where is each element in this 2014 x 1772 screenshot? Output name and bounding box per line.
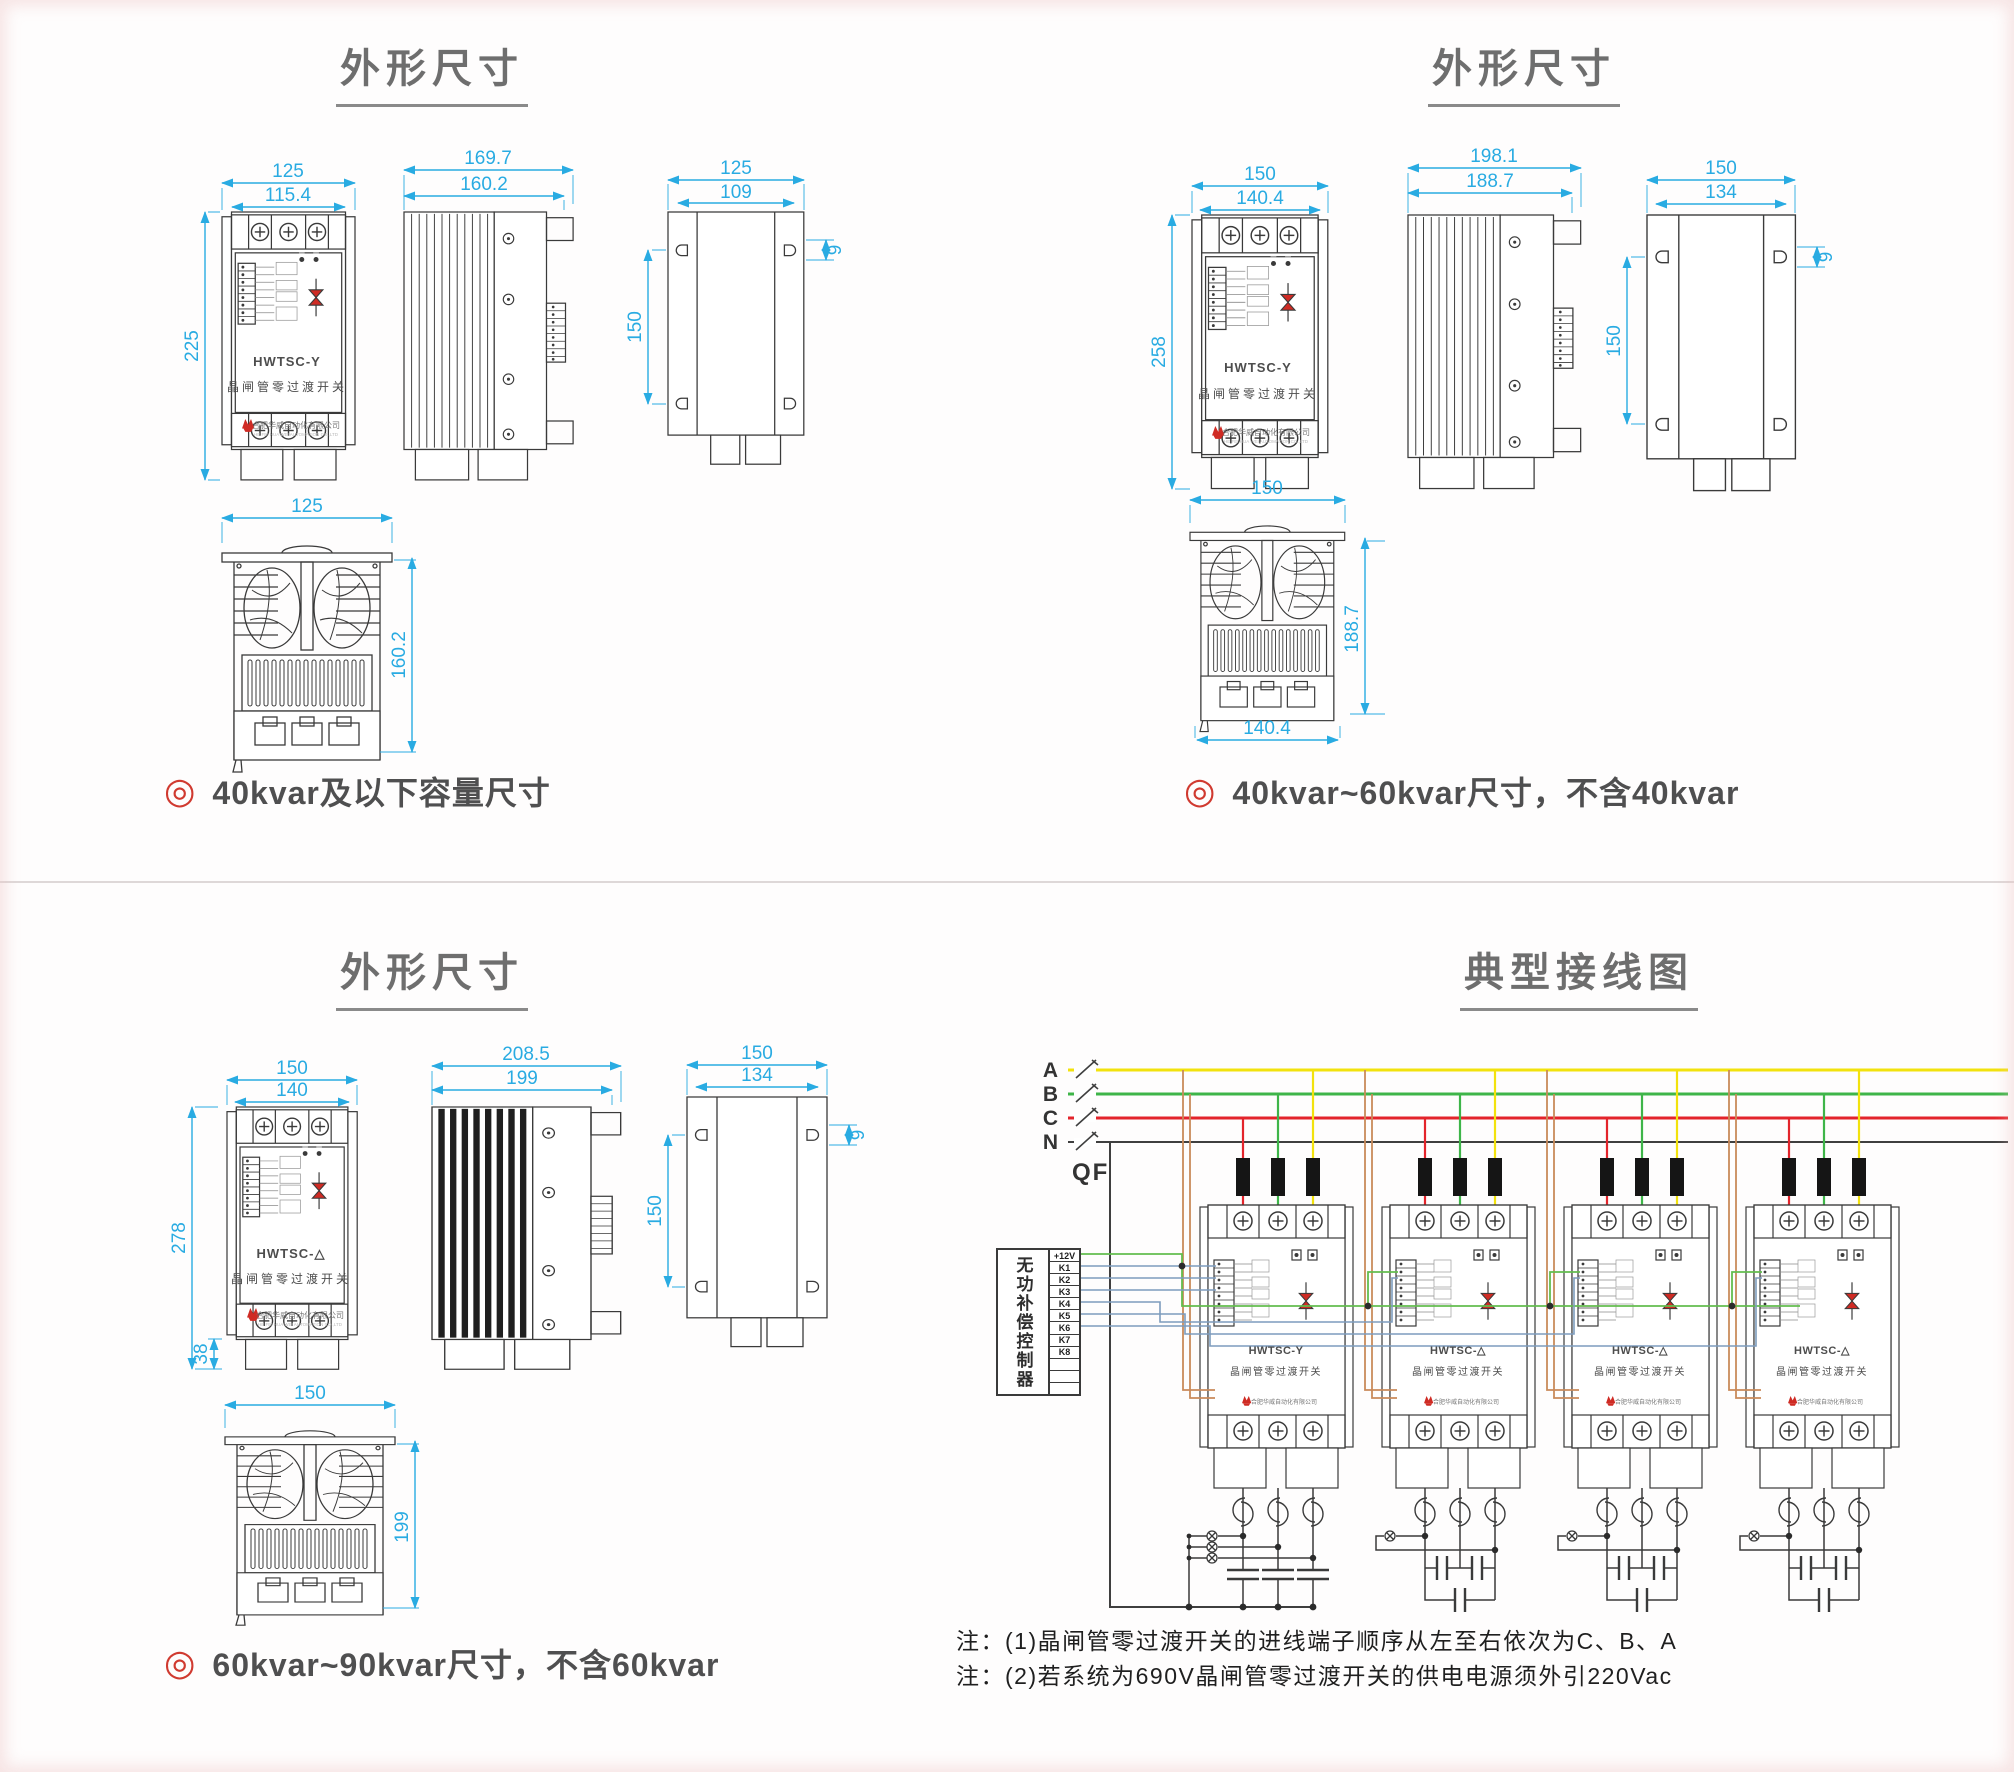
breaker-pole-icon bbox=[1074, 1108, 1098, 1126]
dim-front-inner-width: 115.4 bbox=[265, 185, 312, 206]
title-bottom-left: 外形尺寸 bbox=[336, 940, 528, 1011]
device-model: HWTSC-Y bbox=[1224, 360, 1292, 375]
wiring-diagram: A B C N QF bbox=[1043, 1059, 2008, 1612]
capacitor-bank-delta bbox=[1740, 1488, 1869, 1612]
controller-terminal-12v: +12V bbox=[1050, 1250, 1079, 1262]
dim-back-inner-width: 109 bbox=[720, 182, 752, 203]
dim-front-outer-width: 125 bbox=[272, 161, 304, 182]
caption-40kvar: ◎ 40kvar及以下容量尺寸 bbox=[164, 768, 551, 814]
caption-text: 40kvar~60kvar尺寸，不含40kvar bbox=[1232, 768, 1739, 814]
dim-back-hole-offset: 9 bbox=[825, 245, 846, 256]
quadrant-top-right: HWTSC-Y 晶闸管零过渡开关 合肥华威自动化有限公司 HE FEI HUA … bbox=[1149, 146, 1837, 740]
breaker-label: QF bbox=[1072, 1159, 1109, 1186]
dim-top-height: 199 bbox=[392, 1511, 413, 1543]
device-subtitle: 晶闸管零过渡开关 bbox=[1412, 1365, 1504, 1378]
front-view-drawing bbox=[1192, 215, 1328, 489]
device-model: HWTSC-△ bbox=[257, 1246, 326, 1261]
dim-top-bottom-width: 140.4 bbox=[1243, 718, 1291, 739]
front-view-drawing bbox=[227, 1107, 357, 1369]
caption-40-60kvar: ◎ 40kvar~60kvar尺寸，不含40kvar bbox=[1184, 768, 1739, 814]
title-wiring-diagram: 典型接线图 bbox=[1460, 940, 1698, 1011]
device-subtitle: 晶闸管零过渡开关 bbox=[1594, 1365, 1686, 1378]
dim-back-inner-width: 134 bbox=[741, 1065, 773, 1086]
dim-back-outer-width: 150 bbox=[1705, 158, 1737, 179]
caption-bullet-icon: ◎ bbox=[164, 1645, 196, 1681]
controller-terminal-k6: K6 bbox=[1050, 1322, 1079, 1334]
controller-terminal-blank bbox=[1050, 1359, 1079, 1371]
device-model: HWTSC-△ bbox=[1612, 1345, 1668, 1357]
section-divider bbox=[0, 881, 2014, 883]
top-fan-view-drawing bbox=[225, 1431, 395, 1625]
breaker-pole-icon bbox=[1074, 1084, 1098, 1102]
manual-page: HWTSC-Y 晶闸管零过渡开关 合肥华威自动化有限公司 HE FEI HUA … bbox=[0, 0, 2014, 1772]
dim-front-foot-height: 38 bbox=[191, 1343, 212, 1364]
device-model: HWTSC-△ bbox=[1794, 1345, 1850, 1357]
dim-top-height: 188.7 bbox=[1342, 605, 1363, 653]
caption-bullet-icon: ◎ bbox=[164, 773, 196, 809]
company-name: 合肥华威自动化有限公司 bbox=[1433, 1398, 1499, 1406]
device-model: HWTSC-Y bbox=[1249, 1345, 1304, 1357]
device-subtitle: 晶闸管零过渡开关 bbox=[1198, 386, 1318, 401]
side-view-drawing bbox=[432, 1107, 621, 1369]
controller-terminal-k4: K4 bbox=[1050, 1298, 1079, 1310]
fuse-drops bbox=[1243, 1070, 1859, 1206]
drawings-canvas: HWTSC-Y 晶闸管零过渡开关 合肥华威自动化有限公司 HE FEI HUA … bbox=[0, 0, 2014, 1772]
side-view-drawing bbox=[404, 212, 573, 480]
breaker-pole-icon bbox=[1074, 1132, 1098, 1150]
device-model: HWTSC-Y bbox=[253, 354, 321, 369]
dim-top-width: 150 bbox=[1251, 478, 1283, 499]
dim-front-height: 225 bbox=[182, 330, 203, 362]
dim-side-inner-depth: 188.7 bbox=[1466, 171, 1514, 192]
company-name: 合肥华威自动化有限公司 bbox=[1222, 427, 1310, 437]
capacitor-bank-delta bbox=[1558, 1488, 1687, 1612]
dim-back-hole-offset: 9 bbox=[848, 1130, 869, 1141]
capacitor-bank-star bbox=[1186, 1488, 1329, 1610]
dim-front-height: 278 bbox=[169, 1222, 190, 1254]
dim-back-hole-span: 150 bbox=[1604, 325, 1625, 357]
fuses bbox=[1236, 1158, 1866, 1196]
controller-terminal-k1: K1 bbox=[1050, 1262, 1079, 1274]
dim-side-inner-depth: 199 bbox=[506, 1068, 538, 1089]
dim-back-hole-span: 150 bbox=[645, 1195, 666, 1227]
caption-60-90kvar: ◎ 60kvar~90kvar尺寸，不含60kvar bbox=[164, 1640, 719, 1686]
back-view-drawing bbox=[1647, 215, 1795, 491]
dim-front-outer-width: 150 bbox=[276, 1058, 308, 1079]
dim-top-width: 150 bbox=[294, 1383, 326, 1404]
top-fan-view-drawing bbox=[1190, 526, 1345, 732]
company-name: 合肥华威自动化有限公司 bbox=[256, 1310, 344, 1320]
phase-a-label: A bbox=[1043, 1059, 1058, 1082]
dim-front-height: 258 bbox=[1149, 336, 1170, 368]
caption-bullet-icon: ◎ bbox=[1184, 773, 1216, 809]
dim-side-outer-depth: 198.1 bbox=[1470, 146, 1518, 167]
dim-side-outer-depth: 169.7 bbox=[464, 148, 512, 169]
dim-front-inner-width: 140.4 bbox=[1236, 188, 1284, 209]
company-name-en: HE FEI HUA WEI AUTOMATION CO.,LTD bbox=[1224, 439, 1309, 444]
side-view-drawing bbox=[1408, 215, 1581, 489]
controller-terminal-k7: K7 bbox=[1050, 1335, 1079, 1347]
company-name-en: HE FEI HUA WEI AUTOMATION CO.,LTD bbox=[258, 1322, 343, 1327]
device-subtitle: 晶闸管零过渡开关 bbox=[1776, 1365, 1868, 1378]
controller-label: 无功补偿控制器 bbox=[996, 1248, 1050, 1396]
controller-terminal-k8: K8 bbox=[1050, 1347, 1079, 1359]
company-name: 合肥华威自动化有限公司 bbox=[1251, 1398, 1317, 1406]
dim-top-width: 125 bbox=[291, 496, 323, 517]
dim-front-outer-width: 150 bbox=[1244, 164, 1276, 185]
device-subtitle: 晶闸管零过渡开关 bbox=[227, 379, 347, 394]
neutral-label: N bbox=[1043, 1131, 1058, 1154]
company-name: 合肥华威自动化有限公司 bbox=[1797, 1398, 1863, 1406]
dim-top-depth: 160.2 bbox=[389, 631, 410, 679]
dim-side-outer-depth: 208.5 bbox=[502, 1044, 550, 1065]
controller-terminal-blank bbox=[1050, 1371, 1079, 1383]
device-subtitle: 晶闸管零过渡开关 bbox=[231, 1271, 351, 1286]
controller-terminal-k3: K3 bbox=[1050, 1286, 1079, 1298]
company-name: 合肥华威自动化有限公司 bbox=[1615, 1398, 1681, 1406]
dim-back-inner-width: 134 bbox=[1705, 182, 1737, 203]
note-line-1: 注：(1)晶闸管零过渡开关的进线端子顺序从左至右依次为C、B、A bbox=[956, 1624, 1677, 1659]
capacitor-bank-delta bbox=[1376, 1488, 1505, 1612]
caption-text: 60kvar~90kvar尺寸，不含60kvar bbox=[212, 1640, 719, 1686]
phase-c-label: C bbox=[1043, 1107, 1058, 1130]
back-view-drawing bbox=[668, 212, 804, 464]
dim-back-outer-width: 125 bbox=[720, 158, 752, 179]
company-name-en: HE FEI HUA WEI AUTOMATION CO.,LTD bbox=[254, 432, 339, 437]
caption-text: 40kvar及以下容量尺寸 bbox=[212, 768, 550, 814]
dim-side-inner-depth: 160.2 bbox=[460, 174, 508, 195]
top-fan-view-drawing bbox=[222, 546, 392, 772]
title-top-right: 外形尺寸 bbox=[1428, 36, 1620, 107]
controller-terminals: +12V K1 K2 K3 K4 K5 K6 K7 K8 bbox=[1050, 1248, 1081, 1396]
reactive-power-controller: 无功补偿控制器 +12V K1 K2 K3 K4 K5 K6 K7 K8 bbox=[996, 1248, 1081, 1396]
device-model: HWTSC-△ bbox=[1430, 1345, 1486, 1357]
dim-back-outer-width: 150 bbox=[741, 1043, 773, 1064]
title-top-left: 外形尺寸 bbox=[336, 36, 528, 107]
back-view-drawing bbox=[687, 1097, 827, 1347]
device-subtitle: 晶闸管零过渡开关 bbox=[1230, 1365, 1322, 1378]
front-view-drawing bbox=[222, 212, 355, 480]
company-name: 合肥华威自动化有限公司 bbox=[252, 420, 340, 430]
dim-back-hole-offset: 9 bbox=[1816, 252, 1837, 263]
quadrant-bottom-left: HWTSC-△ 晶闸管零过渡开关 合肥华威自动化有限公司 HE FEI HUA … bbox=[169, 1043, 869, 1625]
controller-terminal-k5: K5 bbox=[1050, 1310, 1079, 1322]
quadrant-top-left: HWTSC-Y 晶闸管零过渡开关 合肥华威自动化有限公司 HE FEI HUA … bbox=[182, 148, 846, 772]
dim-front-inner-width: 140 bbox=[276, 1080, 308, 1101]
controller-terminal-k2: K2 bbox=[1050, 1274, 1079, 1286]
phase-b-label: B bbox=[1043, 1083, 1058, 1106]
wiring-notes: 注：(1)晶闸管零过渡开关的进线端子顺序从左至右依次为C、B、A 注：(2)若系… bbox=[956, 1624, 1677, 1694]
controller-terminal-blank bbox=[1050, 1383, 1079, 1394]
note-line-2: 注：(2)若系统为690V晶闸管零过渡开关的供电电源须外引220Vac bbox=[956, 1659, 1677, 1694]
breaker-pole-icon bbox=[1074, 1060, 1098, 1078]
dim-back-hole-span: 150 bbox=[625, 311, 646, 343]
